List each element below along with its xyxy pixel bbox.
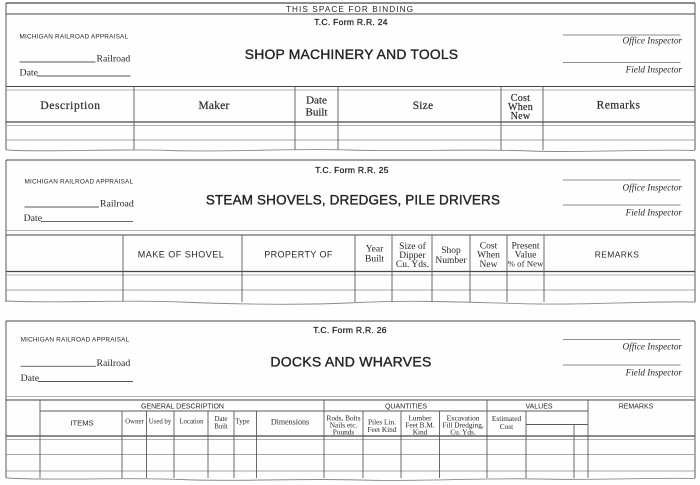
svg-text:MAKE OF SHOVEL: MAKE OF SHOVEL (138, 250, 225, 260)
svg-text:Remarks: Remarks (597, 100, 641, 112)
svg-text:Type: Type (235, 418, 249, 426)
svg-text:Cost: Cost (500, 422, 513, 431)
svg-text:Kind: Kind (413, 428, 428, 437)
svg-text:Maker: Maker (198, 100, 229, 112)
svg-text:MICHIGAN RAILROAD APPRAISAL: MICHIGAN RAILROAD APPRAISAL (20, 34, 129, 41)
svg-text:Used by: Used by (149, 419, 172, 426)
svg-text:Dimensions: Dimensions (271, 418, 309, 427)
svg-text:Date: Date (215, 416, 228, 423)
svg-text:ITEMS: ITEMS (70, 419, 93, 428)
svg-text:Office Inspector: Office Inspector (623, 36, 683, 46)
svg-text:REMARKS: REMARKS (619, 404, 654, 411)
svg-text:Date: Date (20, 68, 39, 79)
svg-text:Date: Date (24, 213, 43, 224)
svg-text:Pounds: Pounds (333, 428, 355, 437)
svg-text:Location: Location (179, 419, 204, 426)
svg-text:SHOP MACHINERY AND TOOLS: SHOP MACHINERY AND TOOLS (245, 46, 458, 62)
svg-text:Cu. Yds.: Cu. Yds. (396, 260, 429, 270)
svg-text:DOCKS AND WHARVES: DOCKS AND WHARVES (270, 354, 431, 370)
svg-text:Built: Built (365, 255, 384, 265)
svg-text:% of New: % of New (508, 259, 544, 269)
svg-text:Built: Built (305, 107, 327, 119)
svg-text:Built: Built (214, 424, 228, 431)
svg-text:STEAM SHOVELS, DREDGES, PILE D: STEAM SHOVELS, DREDGES, PILE DRIVERS (206, 193, 500, 208)
svg-text:New: New (480, 260, 498, 270)
svg-text:THIS SPACE FOR BINDING: THIS SPACE FOR BINDING (286, 5, 414, 14)
svg-text:Date: Date (306, 95, 327, 107)
svg-text:Cu. Yds.: Cu. Yds. (450, 428, 476, 437)
svg-text:Owner: Owner (125, 419, 144, 426)
svg-text:Shop: Shop (441, 246, 461, 256)
svg-text:GENERAL DESCRIPTION: GENERAL DESCRIPTION (141, 404, 224, 411)
svg-text:MICHIGAN RAILROAD APPRAISAL: MICHIGAN RAILROAD APPRAISAL (21, 337, 130, 344)
svg-text:Number: Number (435, 256, 467, 266)
svg-text:Railroad: Railroad (97, 358, 131, 369)
svg-text:Railroad: Railroad (100, 199, 134, 210)
svg-text:Office Inspector: Office Inspector (623, 342, 683, 352)
svg-text:Field Inspector: Field Inspector (625, 65, 683, 75)
svg-text:QUANTITIES: QUANTITIES (385, 404, 427, 411)
svg-text:When: When (477, 251, 500, 261)
svg-text:Description: Description (40, 100, 100, 112)
svg-text:Date: Date (21, 373, 40, 384)
svg-text:REMARKS: REMARKS (595, 250, 640, 260)
svg-text:T.C. Form R.R. 24: T.C. Form R.R. 24 (314, 17, 388, 27)
svg-text:Office Inspector: Office Inspector (623, 183, 683, 193)
svg-text:VALUES: VALUES (525, 404, 552, 411)
svg-text:Railroad: Railroad (97, 54, 131, 65)
svg-text:PROPERTY OF: PROPERTY OF (264, 250, 333, 260)
svg-text:MICHIGAN RAILROAD APPRAISAL: MICHIGAN RAILROAD APPRAISAL (25, 179, 134, 186)
svg-text:T.C. Form R.R. 25: T.C. Form R.R. 25 (315, 165, 389, 175)
svg-text:T.C. Form R.R. 26: T.C. Form R.R. 26 (313, 325, 387, 335)
svg-text:Size: Size (413, 100, 434, 112)
svg-text:Field Inspector: Field Inspector (625, 208, 683, 218)
svg-text:Field Inspector: Field Inspector (625, 368, 683, 378)
svg-text:Feet Kind: Feet Kind (368, 425, 397, 434)
svg-text:Year: Year (366, 245, 384, 255)
svg-text:New: New (511, 111, 531, 122)
